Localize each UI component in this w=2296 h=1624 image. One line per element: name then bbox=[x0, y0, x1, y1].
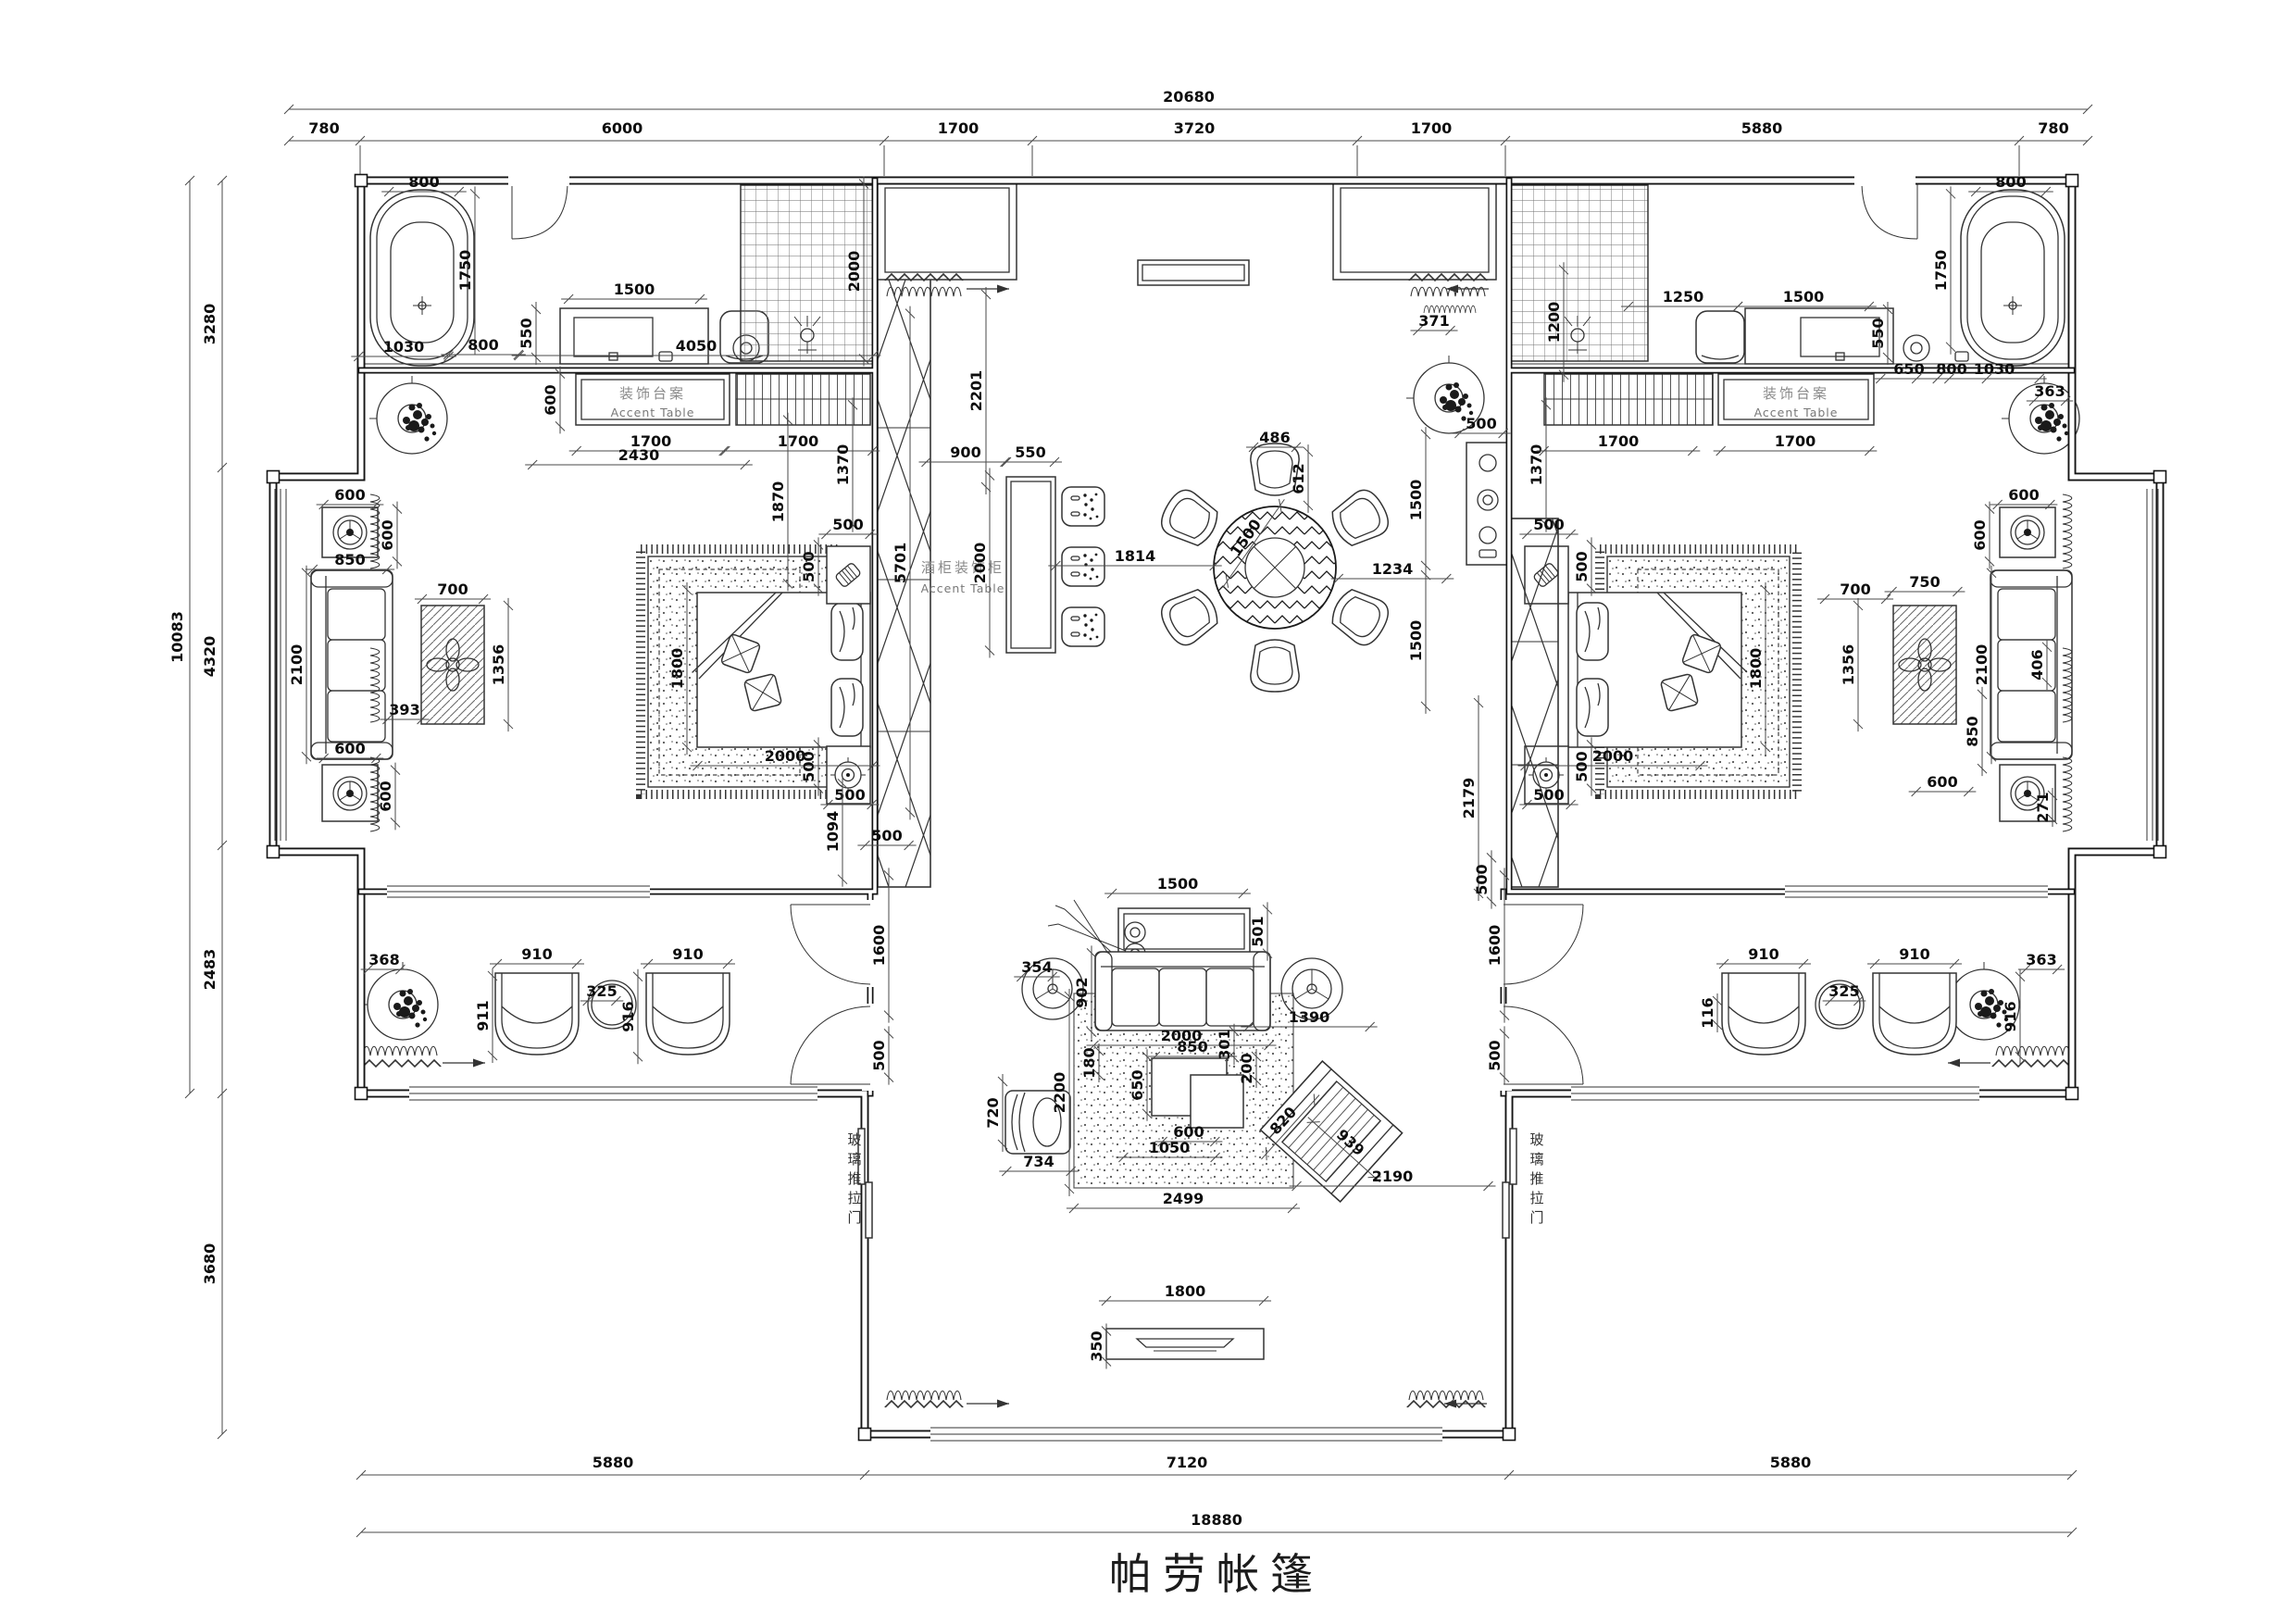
label-text: 1600 bbox=[1486, 925, 1504, 967]
label-text: 1800 bbox=[668, 648, 686, 690]
label-text: 850 bbox=[1964, 716, 1981, 746]
label-text: 1700 bbox=[1411, 119, 1453, 137]
dim-label: 910 bbox=[1716, 945, 1811, 968]
dim-label: 910 bbox=[1867, 945, 1962, 968]
dim-label: 1800 bbox=[1099, 1282, 1271, 1305]
label-text: 1750 bbox=[456, 250, 474, 292]
dim-label: 10083 bbox=[168, 611, 186, 663]
label-text: 6000 bbox=[602, 119, 643, 137]
label-text: Accent Table bbox=[921, 581, 1005, 595]
label-text: 2499 bbox=[1163, 1190, 1204, 1207]
dim-label: 500 bbox=[1452, 415, 1510, 438]
furniture-label: 酒柜装饰柜 bbox=[921, 559, 1004, 576]
label-text: 5880 bbox=[1770, 1454, 1812, 1471]
label-text: 393 bbox=[389, 701, 419, 718]
label-text: 350 bbox=[1088, 1330, 1105, 1361]
label-text: 600 bbox=[377, 781, 394, 811]
label-text: 612 bbox=[1290, 463, 1307, 493]
label-text: 1370 bbox=[1528, 444, 1545, 486]
furniture-layer bbox=[311, 181, 2079, 1408]
dim-label: 600 bbox=[542, 367, 565, 434]
label-text: 5880 bbox=[1741, 119, 1783, 137]
label-text: 500 bbox=[1573, 551, 1591, 581]
door-swing bbox=[1862, 181, 1917, 239]
dim-label: 3280 bbox=[201, 304, 218, 345]
label-text: 500 bbox=[870, 1040, 888, 1070]
label-text: 600 bbox=[542, 384, 559, 415]
walls bbox=[273, 181, 2160, 1434]
label-text: 1700 bbox=[1775, 432, 1816, 450]
floorplan-drawing: 2068078060001700372017005880780100833280… bbox=[0, 0, 2296, 1624]
dim-label: 1700 bbox=[1537, 432, 1701, 456]
dim-label: 3680 bbox=[201, 1243, 218, 1285]
dim-label: 500 bbox=[818, 516, 877, 539]
furniture-label: Accent Table bbox=[921, 581, 1005, 595]
label-text: 600 bbox=[334, 486, 365, 504]
dim-label: 6000 bbox=[602, 119, 643, 137]
label-text: 500 bbox=[1533, 786, 1564, 804]
label-text: 1390 bbox=[1289, 1008, 1330, 1026]
svg-text:推: 推 bbox=[847, 1170, 861, 1187]
label-text: 2100 bbox=[288, 644, 306, 686]
top-planter-left bbox=[878, 181, 1017, 280]
label-text: 2100 bbox=[1973, 644, 1990, 686]
floorplan-sheet: 2068078060001700372017005880780100833280… bbox=[0, 0, 2296, 1624]
label-text: 500 bbox=[834, 786, 865, 804]
sofa-console bbox=[1118, 908, 1250, 955]
label-text: 916 bbox=[2002, 1001, 2019, 1031]
dim-label: 1700 bbox=[717, 432, 880, 456]
label-text: 2483 bbox=[201, 949, 218, 991]
bar-counter bbox=[1466, 443, 1509, 565]
label-text: 902 bbox=[1073, 977, 1091, 1007]
sliding-door-label: 玻璃推拉门 bbox=[847, 1131, 861, 1226]
label-text: 1500 bbox=[1157, 875, 1199, 893]
label-text: 486 bbox=[1259, 429, 1290, 446]
label-text: 180 bbox=[1080, 1047, 1098, 1078]
label-text: 301 bbox=[1216, 1029, 1233, 1059]
label-text: 2000 bbox=[971, 543, 989, 584]
furniture-label: Accent Table bbox=[611, 406, 695, 419]
label-text: 帕劳帐篷 bbox=[1109, 1549, 1324, 1599]
sofa-3seat bbox=[311, 570, 393, 759]
dim-label: 1750 bbox=[1932, 186, 1955, 354]
door-swing bbox=[791, 1006, 870, 1084]
door-swing bbox=[1504, 905, 1583, 984]
furniture-label: Accent Table bbox=[1754, 406, 1839, 419]
label-text: 5701 bbox=[892, 543, 909, 584]
dim-label: 1700 bbox=[938, 119, 980, 137]
dim-label: 780 bbox=[2038, 119, 2068, 137]
furniture-label: 装饰台案 bbox=[1763, 385, 1829, 402]
dim-label: 750 bbox=[1885, 573, 1965, 596]
label-text: 500 bbox=[1473, 864, 1491, 894]
label-text: 911 bbox=[474, 1000, 492, 1031]
dim-label: 1356 bbox=[490, 598, 513, 731]
label-text: 1370 bbox=[834, 444, 852, 486]
door-swing bbox=[1504, 1006, 1583, 1084]
label-text: 780 bbox=[2038, 119, 2068, 137]
label-text: 800 bbox=[468, 336, 498, 354]
dim-label: 5880 bbox=[593, 1454, 634, 1471]
dim-label: 600 bbox=[1990, 486, 2058, 509]
dim-label: 2201 bbox=[967, 287, 991, 494]
dim-label: 7120 bbox=[1167, 1454, 1208, 1471]
dim-label: 600 bbox=[377, 763, 400, 831]
svg-text:玻: 玻 bbox=[847, 1131, 861, 1148]
label-text: 装饰台案 bbox=[1763, 385, 1829, 402]
dim-label: 1234 bbox=[1331, 560, 1454, 583]
dining-area bbox=[878, 181, 1496, 692]
label-text: 1356 bbox=[490, 644, 507, 686]
vanity-chair bbox=[1696, 311, 1744, 363]
dim-label: 3720 bbox=[1174, 119, 1216, 137]
dim-label: 1700 bbox=[1714, 432, 1878, 456]
drawing-title: 帕劳帐篷 bbox=[1109, 1549, 1324, 1599]
label-text: 1234 bbox=[1372, 560, 1414, 578]
dim-label: 4320 bbox=[201, 636, 218, 678]
label-text: 1500 bbox=[614, 281, 655, 298]
label-text: 1500 bbox=[1407, 620, 1425, 662]
label-text: 916 bbox=[619, 1001, 637, 1031]
dim-label: 720 bbox=[984, 1074, 1007, 1152]
dim-label: 363 bbox=[2027, 382, 2073, 406]
dim-label: 910 bbox=[490, 945, 584, 968]
label-text: 7120 bbox=[1167, 1454, 1208, 1471]
dim-label: 500 bbox=[1473, 850, 1496, 908]
dim-label: 600 bbox=[379, 502, 402, 569]
label-text: 271 bbox=[2034, 792, 2052, 822]
label-text: 2190 bbox=[1372, 1168, 1414, 1185]
label-text: 550 bbox=[1015, 443, 1045, 461]
dim-label: 910 bbox=[641, 945, 735, 968]
niche-console bbox=[1138, 260, 1249, 285]
label-text: 720 bbox=[984, 1097, 1002, 1128]
dim-label: 900 bbox=[918, 443, 1012, 467]
svg-text:拉: 拉 bbox=[847, 1190, 861, 1206]
label-text: 1800 bbox=[1747, 648, 1765, 690]
label-text: 734 bbox=[1023, 1153, 1054, 1170]
label-text: 2000 bbox=[845, 251, 863, 293]
dim-label: 5880 bbox=[1770, 1454, 1812, 1471]
nightstand bbox=[827, 546, 870, 604]
label-text: 1750 bbox=[1932, 250, 1950, 292]
furniture-label: 装饰台案 bbox=[619, 385, 686, 402]
label-text: 700 bbox=[1840, 581, 1870, 598]
label-text: 600 bbox=[1927, 773, 1957, 791]
label-text: 3280 bbox=[201, 304, 218, 345]
label-text: 500 bbox=[800, 551, 817, 581]
label-text: 500 bbox=[1486, 1040, 1504, 1070]
sliding-door-label: 玻璃推拉门 bbox=[1529, 1131, 1543, 1226]
label-text: 2201 bbox=[967, 370, 985, 412]
label-text: 363 bbox=[2026, 951, 2056, 968]
dim-label: 600 bbox=[1971, 502, 1994, 569]
label-text: 750 bbox=[1909, 573, 1940, 591]
label-text: 910 bbox=[672, 945, 703, 963]
label-text: 18880 bbox=[1191, 1511, 1242, 1529]
dim-label: 700 bbox=[1817, 581, 1893, 604]
label-text: 500 bbox=[800, 751, 817, 781]
dim-label: 18880 bbox=[1191, 1511, 1242, 1529]
label-text: 910 bbox=[1899, 945, 1929, 963]
label-text: 600 bbox=[2008, 486, 2039, 504]
dim-label: 1500 bbox=[561, 281, 707, 304]
label-text: 1700 bbox=[938, 119, 980, 137]
dim-label: 116 bbox=[1699, 993, 1722, 1032]
label-text: 501 bbox=[1249, 916, 1267, 946]
dim-label: 20680 bbox=[1163, 88, 1215, 106]
label-text: 2200 bbox=[1051, 1072, 1068, 1114]
label-text: 1800 bbox=[1165, 1282, 1206, 1300]
label-text: 1250 bbox=[1663, 288, 1704, 306]
label-text: 550 bbox=[518, 318, 535, 348]
label-text: 1500 bbox=[1407, 480, 1425, 521]
label-text: 550 bbox=[1869, 318, 1887, 348]
dim-label: 2200 bbox=[1051, 989, 1074, 1196]
dim-label: 600 bbox=[317, 486, 384, 509]
dining-console bbox=[1006, 477, 1055, 653]
dim-label: 2430 bbox=[525, 446, 753, 469]
label-text: 20680 bbox=[1163, 88, 1215, 106]
dim-label: 700 bbox=[415, 581, 491, 604]
label-text: 600 bbox=[1971, 519, 1989, 550]
label-text: 4320 bbox=[201, 636, 218, 678]
tv-console bbox=[1106, 1329, 1264, 1359]
dim-label: 1500 bbox=[1407, 568, 1430, 714]
svg-text:璃: 璃 bbox=[1529, 1151, 1543, 1168]
dim-label: 780 bbox=[308, 119, 339, 137]
label-text: 1870 bbox=[769, 481, 787, 523]
label-text: Accent Table bbox=[611, 406, 695, 419]
dim-label: 363 bbox=[2018, 951, 2065, 974]
label-text: 500 bbox=[1573, 751, 1591, 781]
label-text: 1500 bbox=[1783, 288, 1825, 306]
label-text: 2179 bbox=[1460, 778, 1478, 819]
dim-label: 550 bbox=[999, 443, 1062, 467]
label-text: 406 bbox=[2028, 649, 2046, 680]
label-text: Accent Table bbox=[1754, 406, 1839, 419]
coffee-table bbox=[1893, 606, 1956, 724]
label-text: 1700 bbox=[1598, 432, 1640, 450]
label-text: 910 bbox=[1748, 945, 1778, 963]
svg-text:璃: 璃 bbox=[847, 1151, 861, 1168]
label-text: 1030 bbox=[1974, 360, 2015, 378]
dim-label: 500 bbox=[1573, 537, 1596, 595]
label-text: 3720 bbox=[1174, 119, 1216, 137]
dim-label: 2483 bbox=[201, 949, 218, 991]
dim-label: 5880 bbox=[1741, 119, 1783, 137]
label-text: 363 bbox=[2034, 382, 2065, 400]
label-text: 装饰台案 bbox=[619, 385, 686, 402]
dim-label: 368 bbox=[361, 951, 408, 974]
coffee-table-small bbox=[1191, 1075, 1243, 1128]
label-text: 1600 bbox=[870, 925, 888, 967]
dim-label: 734 bbox=[999, 1153, 1078, 1176]
dim-label: 325 bbox=[580, 982, 624, 1006]
label-text: 10083 bbox=[168, 611, 186, 663]
label-text: 1030 bbox=[383, 338, 425, 356]
label-text: 500 bbox=[1533, 516, 1564, 533]
label-text: 1356 bbox=[1840, 644, 1857, 686]
svg-text:门: 门 bbox=[1529, 1209, 1543, 1226]
svg-text:拉: 拉 bbox=[1529, 1190, 1543, 1206]
lounge-bottom-left bbox=[360, 962, 730, 1068]
dim-label: 1500 bbox=[1104, 875, 1251, 898]
dim-label: 850 bbox=[1964, 687, 1987, 776]
label-text: 780 bbox=[308, 119, 339, 137]
dim-label: 1500 bbox=[1407, 427, 1430, 573]
label-text: 1094 bbox=[824, 811, 842, 853]
bathtub bbox=[1961, 190, 2065, 366]
label-text: 5880 bbox=[593, 1454, 634, 1471]
label-text: 700 bbox=[437, 581, 468, 598]
label-text: 354 bbox=[1021, 958, 1052, 976]
label-text: 600 bbox=[379, 519, 396, 550]
label-text: 800 bbox=[408, 173, 439, 191]
label-text: 1700 bbox=[778, 432, 819, 450]
label-text: 1814 bbox=[1115, 547, 1156, 565]
label-text: 酒柜装饰柜 bbox=[921, 559, 1004, 576]
dim-label: 2499 bbox=[1067, 1190, 1300, 1213]
dim-label: 911 bbox=[474, 968, 497, 1063]
dim-label: 371 bbox=[1410, 312, 1457, 335]
svg-text:门: 门 bbox=[847, 1209, 861, 1226]
svg-text:推: 推 bbox=[1529, 1170, 1543, 1187]
label-text: 800 bbox=[1936, 360, 1966, 378]
label-text: 368 bbox=[368, 951, 399, 968]
label-text: 325 bbox=[1828, 982, 1859, 1000]
dim-label: 2100 bbox=[288, 566, 311, 764]
dim-label: 600 bbox=[1909, 773, 1977, 796]
label-text: 1050 bbox=[1149, 1139, 1191, 1156]
dining-table-group bbox=[1155, 443, 1394, 692]
label-text: 200 bbox=[1238, 1053, 1255, 1083]
dim-label: 1700 bbox=[1411, 119, 1453, 137]
sofa-living bbox=[1095, 952, 1270, 1031]
label-text: 900 bbox=[950, 443, 980, 461]
label-text: 500 bbox=[871, 827, 902, 844]
door-swing bbox=[512, 181, 568, 239]
svg-text:玻: 玻 bbox=[1529, 1131, 1543, 1148]
label-text: 850 bbox=[1177, 1038, 1207, 1056]
label-text: 800 bbox=[1995, 173, 2026, 191]
label-text: 325 bbox=[586, 982, 617, 1000]
coffee-table bbox=[421, 606, 484, 724]
label-text: 2430 bbox=[618, 446, 660, 464]
label-text: 2000 bbox=[1592, 747, 1634, 765]
label-text: 116 bbox=[1699, 997, 1716, 1028]
wine-display-cabinet bbox=[1511, 518, 1558, 887]
label-text: 850 bbox=[334, 551, 365, 568]
label-text: 3680 bbox=[201, 1243, 218, 1285]
label-text: 500 bbox=[832, 516, 863, 533]
toilet-roll-icon bbox=[1903, 335, 1929, 361]
label-text: 500 bbox=[1466, 415, 1496, 432]
dim-label: 1356 bbox=[1840, 598, 1863, 731]
label-text: 371 bbox=[1418, 312, 1449, 330]
shower-area bbox=[1511, 185, 1648, 361]
label-text: 1200 bbox=[1545, 302, 1563, 344]
label-text: 910 bbox=[521, 945, 552, 963]
label-text: 600 bbox=[334, 740, 365, 757]
top-planter-right bbox=[1333, 181, 1496, 280]
label-text: 650 bbox=[1129, 1069, 1146, 1100]
door-swing bbox=[791, 905, 870, 984]
label-text: 4050 bbox=[676, 337, 717, 355]
